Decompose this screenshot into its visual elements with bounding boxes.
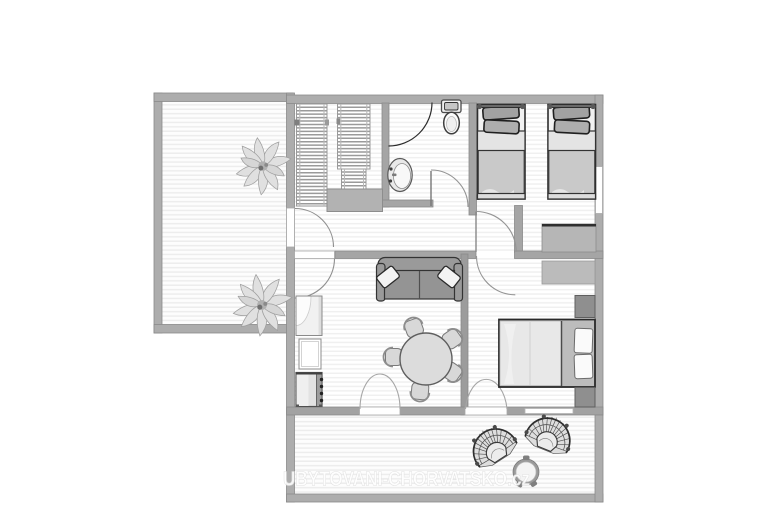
- svg-text:UBYTOVANI-CHORVATSKO.cz: UBYTOVANI-CHORVATSKO.cz: [283, 468, 530, 491]
